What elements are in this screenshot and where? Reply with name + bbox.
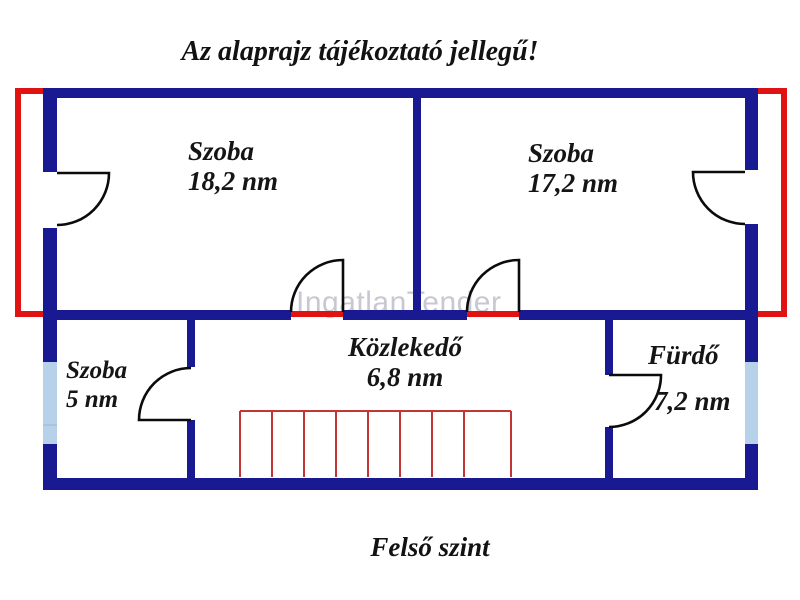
window-left — [43, 362, 57, 444]
wall-bathroom-lower-stub — [605, 427, 613, 478]
wall-left-lower — [43, 444, 57, 490]
wall-small-room-upper-stub — [187, 310, 195, 367]
room-name: Szoba — [528, 138, 618, 168]
room-name: Szoba — [66, 356, 127, 385]
room-label-szoba-18: Szoba 18,2 nm — [188, 136, 278, 196]
door-right-room-exterior — [693, 172, 745, 224]
floor-plan-drawing — [0, 0, 800, 600]
stairs-group — [240, 411, 511, 477]
room-area: 5 nm — [66, 385, 127, 414]
window-right — [745, 362, 758, 444]
door-small-room — [139, 368, 191, 420]
wall-middle-horizontal-center — [343, 310, 467, 320]
room-name: Szoba — [188, 136, 278, 166]
wall-top — [43, 88, 758, 98]
room-label-szoba-5: Szoba 5 nm — [66, 356, 127, 414]
wall-bottom — [43, 478, 758, 490]
room-label-kozlekedo: Közlekedő 6,8 nm — [300, 332, 510, 392]
room-label-furdo-area: 7,2 nm — [654, 386, 731, 416]
wall-right-lower — [745, 444, 758, 490]
wall-right-upper — [745, 88, 758, 170]
room-label-furdo-name: Fürdő — [648, 340, 719, 370]
door-right-room-corridor — [467, 260, 519, 312]
wall-right-middle — [745, 224, 758, 362]
wall-bathroom-upper-stub — [605, 310, 613, 375]
room-label-szoba-17: Szoba 17,2 nm — [528, 138, 618, 198]
wall-middle-horizontal-right — [519, 310, 758, 320]
wall-middle-horizontal-left — [43, 310, 291, 320]
wall-small-room-lower-stub — [187, 420, 195, 478]
disclaimer-title: Az alaprajz tájékoztató jellegű! — [0, 36, 720, 68]
floor-level-label: Felső szint — [80, 532, 780, 563]
door-left-room-exterior — [57, 173, 109, 225]
wall-left-middle — [43, 228, 57, 362]
room-area: 17,2 nm — [528, 168, 618, 198]
wall-between-upper-rooms — [413, 98, 421, 310]
floor-plan-page: { "page": { "title": "Az alaprajz tájéko… — [0, 0, 800, 600]
room-name: Közlekedő — [300, 332, 510, 362]
wall-left-upper — [43, 88, 57, 172]
red-outline-rect — [18, 91, 784, 314]
room-area: 6,8 nm — [300, 362, 510, 392]
room-area: 18,2 nm — [188, 166, 278, 196]
door-left-room-corridor — [291, 260, 343, 312]
